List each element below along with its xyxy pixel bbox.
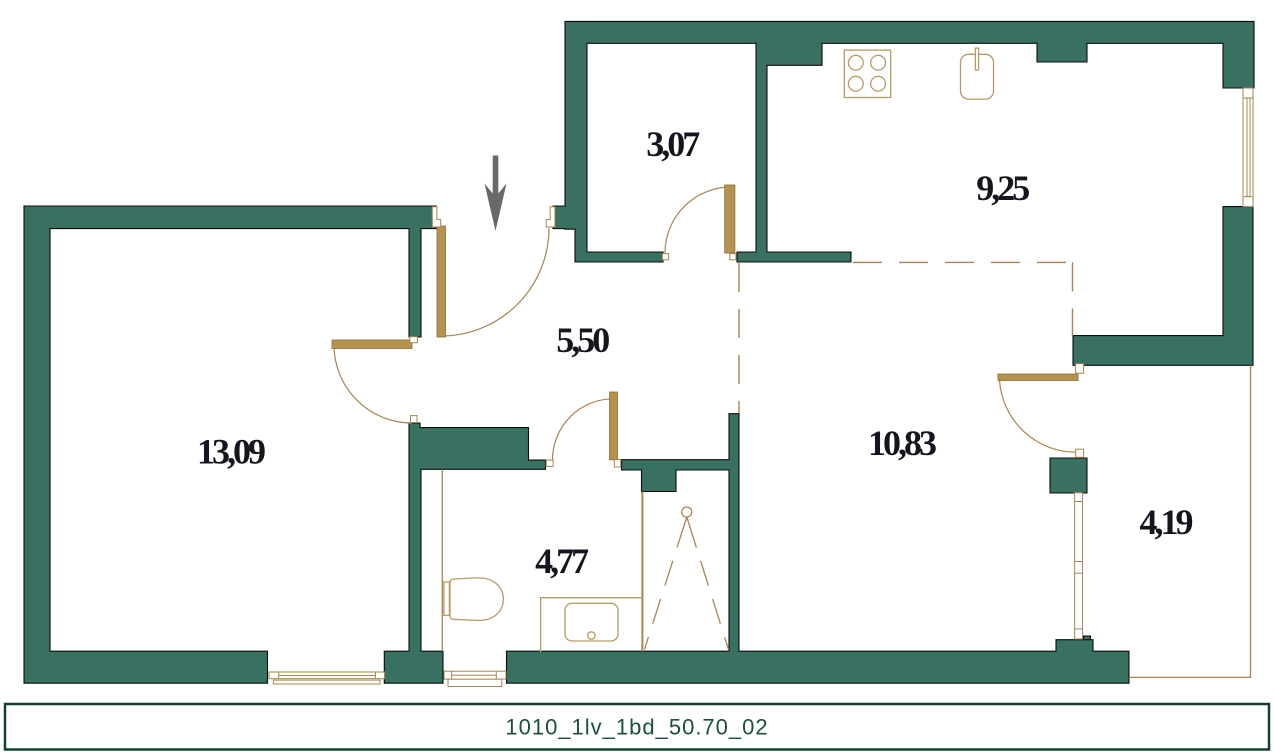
- svg-text:3,07: 3,07: [646, 124, 700, 164]
- svg-text:9,25: 9,25: [976, 168, 1029, 208]
- svg-text:4,19: 4,19: [1140, 502, 1193, 542]
- svg-text:1010_1lv_1bd_50.70_02: 1010_1lv_1bd_50.70_02: [505, 715, 768, 740]
- svg-text:13,09: 13,09: [197, 431, 265, 471]
- svg-text:4,77: 4,77: [535, 541, 589, 581]
- svg-text:10,83: 10,83: [868, 423, 936, 463]
- svg-text:5,50: 5,50: [556, 320, 609, 360]
